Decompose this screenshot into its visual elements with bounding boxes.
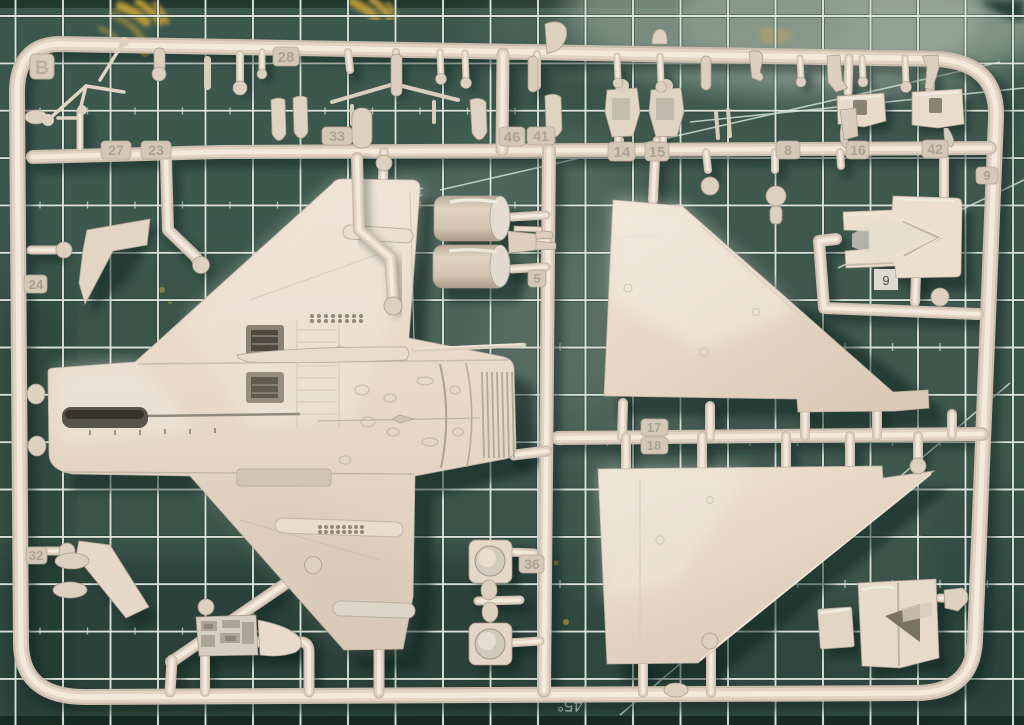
svg-text:36: 36 xyxy=(524,556,540,572)
svg-text:15: 15 xyxy=(649,144,666,161)
svg-text:41: 41 xyxy=(533,128,549,144)
svg-text:14: 14 xyxy=(614,144,631,161)
svg-text:24: 24 xyxy=(29,277,44,292)
svg-text:23: 23 xyxy=(148,142,164,158)
svg-text:17: 17 xyxy=(647,420,661,435)
svg-text:9: 9 xyxy=(882,273,889,288)
svg-text:42: 42 xyxy=(927,141,943,157)
svg-text:5: 5 xyxy=(533,271,540,286)
svg-text:46: 46 xyxy=(504,129,521,146)
svg-text:8: 8 xyxy=(784,142,792,158)
svg-text:16: 16 xyxy=(850,142,866,158)
svg-text:33: 33 xyxy=(329,128,345,144)
svg-text:18: 18 xyxy=(647,438,661,453)
svg-text:28: 28 xyxy=(278,49,295,66)
svg-text:9: 9 xyxy=(983,168,990,183)
svg-text:B: B xyxy=(35,58,49,79)
svg-text:32: 32 xyxy=(29,548,43,563)
svg-text:27: 27 xyxy=(108,142,124,158)
